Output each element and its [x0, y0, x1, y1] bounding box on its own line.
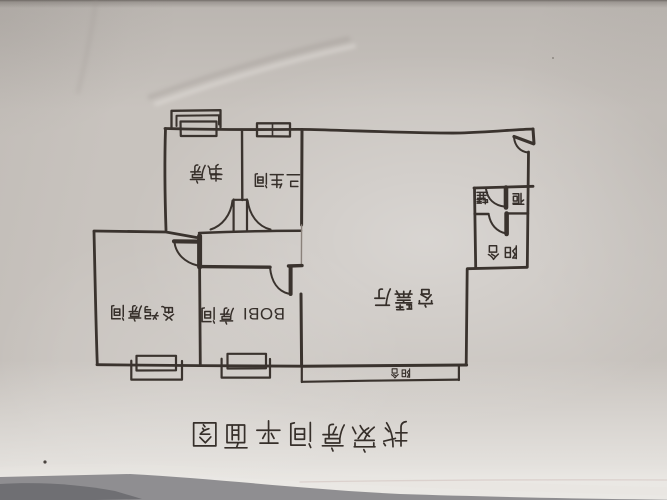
- svg-text:BOBI: BOBI: [242, 304, 285, 323]
